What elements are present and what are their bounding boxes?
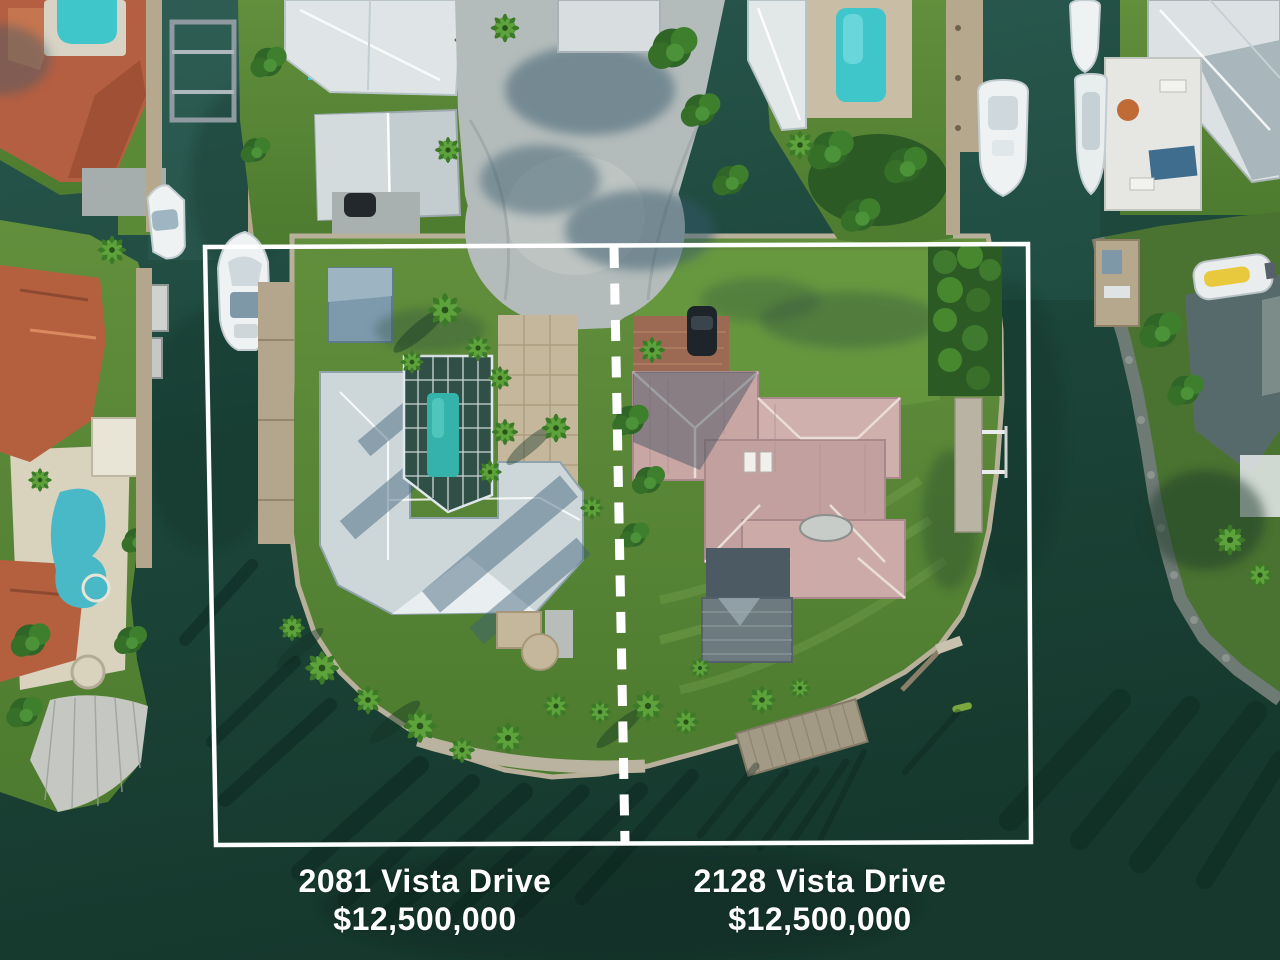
aerial-listing-photo: 2081 Vista Drive $12,500,000 2128 Vista … xyxy=(0,0,1280,960)
left-mansion-lot xyxy=(0,220,152,812)
property-label-left: 2081 Vista Drive $12,500,000 xyxy=(235,862,615,938)
address-left: 2081 Vista Drive xyxy=(235,862,615,900)
mangrove-hedge xyxy=(928,243,1002,396)
top-left-pool xyxy=(57,0,117,44)
aerial-scene xyxy=(0,0,1280,960)
parked-car xyxy=(687,306,717,356)
address-right: 2128 Vista Drive xyxy=(630,862,1010,900)
price-left: $12,500,000 xyxy=(235,900,615,938)
price-right: $12,500,000 xyxy=(630,900,1010,938)
east-dock xyxy=(955,398,982,532)
top-center-lot xyxy=(238,0,486,246)
property-label-right: 2128 Vista Drive $12,500,000 xyxy=(630,862,1010,938)
